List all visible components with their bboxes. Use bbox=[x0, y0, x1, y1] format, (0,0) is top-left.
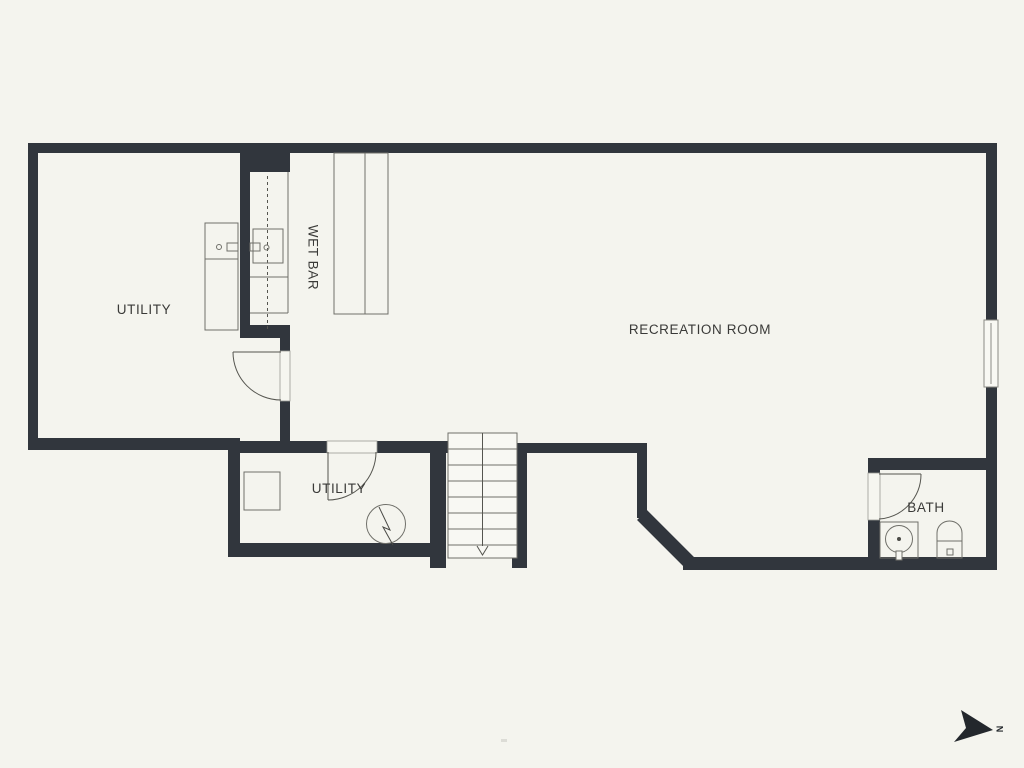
window-icon bbox=[984, 320, 998, 387]
wall-bottom-right bbox=[683, 557, 997, 570]
wall-bath-left-upper bbox=[868, 458, 880, 474]
wall-utility1-bottom bbox=[28, 438, 240, 450]
stairs-down bbox=[448, 433, 517, 558]
door-opening-utility2 bbox=[327, 441, 377, 453]
wall-rec-corner bbox=[637, 443, 647, 518]
storage-cabinet-icon bbox=[244, 472, 280, 510]
wall-utility2-bottom bbox=[228, 543, 446, 557]
room-label-utility-lower: UTILITY bbox=[294, 481, 384, 496]
wall-stair-left bbox=[430, 441, 446, 568]
room-label-wet-bar: WET BAR bbox=[306, 218, 321, 298]
wall-top bbox=[28, 143, 997, 153]
room-label-bath: BATH bbox=[886, 500, 966, 515]
room-label-recreation-room: RECREATION ROOM bbox=[618, 322, 782, 337]
door-swing-utility-rec-icon bbox=[233, 352, 281, 400]
wall-wetbar-stub-top bbox=[250, 153, 290, 172]
wall-stair-right bbox=[517, 443, 527, 568]
artifact-dot bbox=[501, 739, 507, 742]
compass-north-label: N bbox=[994, 726, 1004, 733]
toilet-icon bbox=[937, 521, 962, 558]
door-opening-utility-rec bbox=[280, 351, 290, 401]
wall-bath-top bbox=[868, 458, 997, 470]
wall-right-lower bbox=[986, 386, 997, 570]
wall-utility2-top-left bbox=[240, 441, 327, 453]
bar-island-counter-icon bbox=[334, 153, 388, 314]
wet-bar-sink-counter-icon bbox=[250, 172, 288, 330]
door-opening-bath bbox=[868, 473, 880, 520]
wall-left bbox=[28, 143, 38, 450]
north-arrow-icon bbox=[954, 710, 993, 742]
wall-diagonal bbox=[642, 515, 689, 562]
wall-rec-bottom-mid bbox=[527, 443, 647, 453]
wall-utility2-left bbox=[228, 446, 240, 557]
bath-vanity-sink-icon bbox=[880, 522, 918, 560]
wall-utility-wetbar bbox=[240, 153, 250, 332]
fixtures bbox=[205, 153, 962, 560]
wall-right-upper bbox=[986, 143, 997, 322]
wall-recdoor-lower bbox=[280, 400, 290, 441]
water-heater-icon bbox=[367, 505, 406, 546]
floor-plan bbox=[0, 0, 1024, 768]
room-label-utility-upper: UTILITY bbox=[99, 302, 189, 317]
wall-recdoor-upper bbox=[280, 336, 290, 352]
wall-bath-left-lower bbox=[868, 519, 880, 557]
laundry-sink-counter-icon bbox=[205, 223, 238, 330]
